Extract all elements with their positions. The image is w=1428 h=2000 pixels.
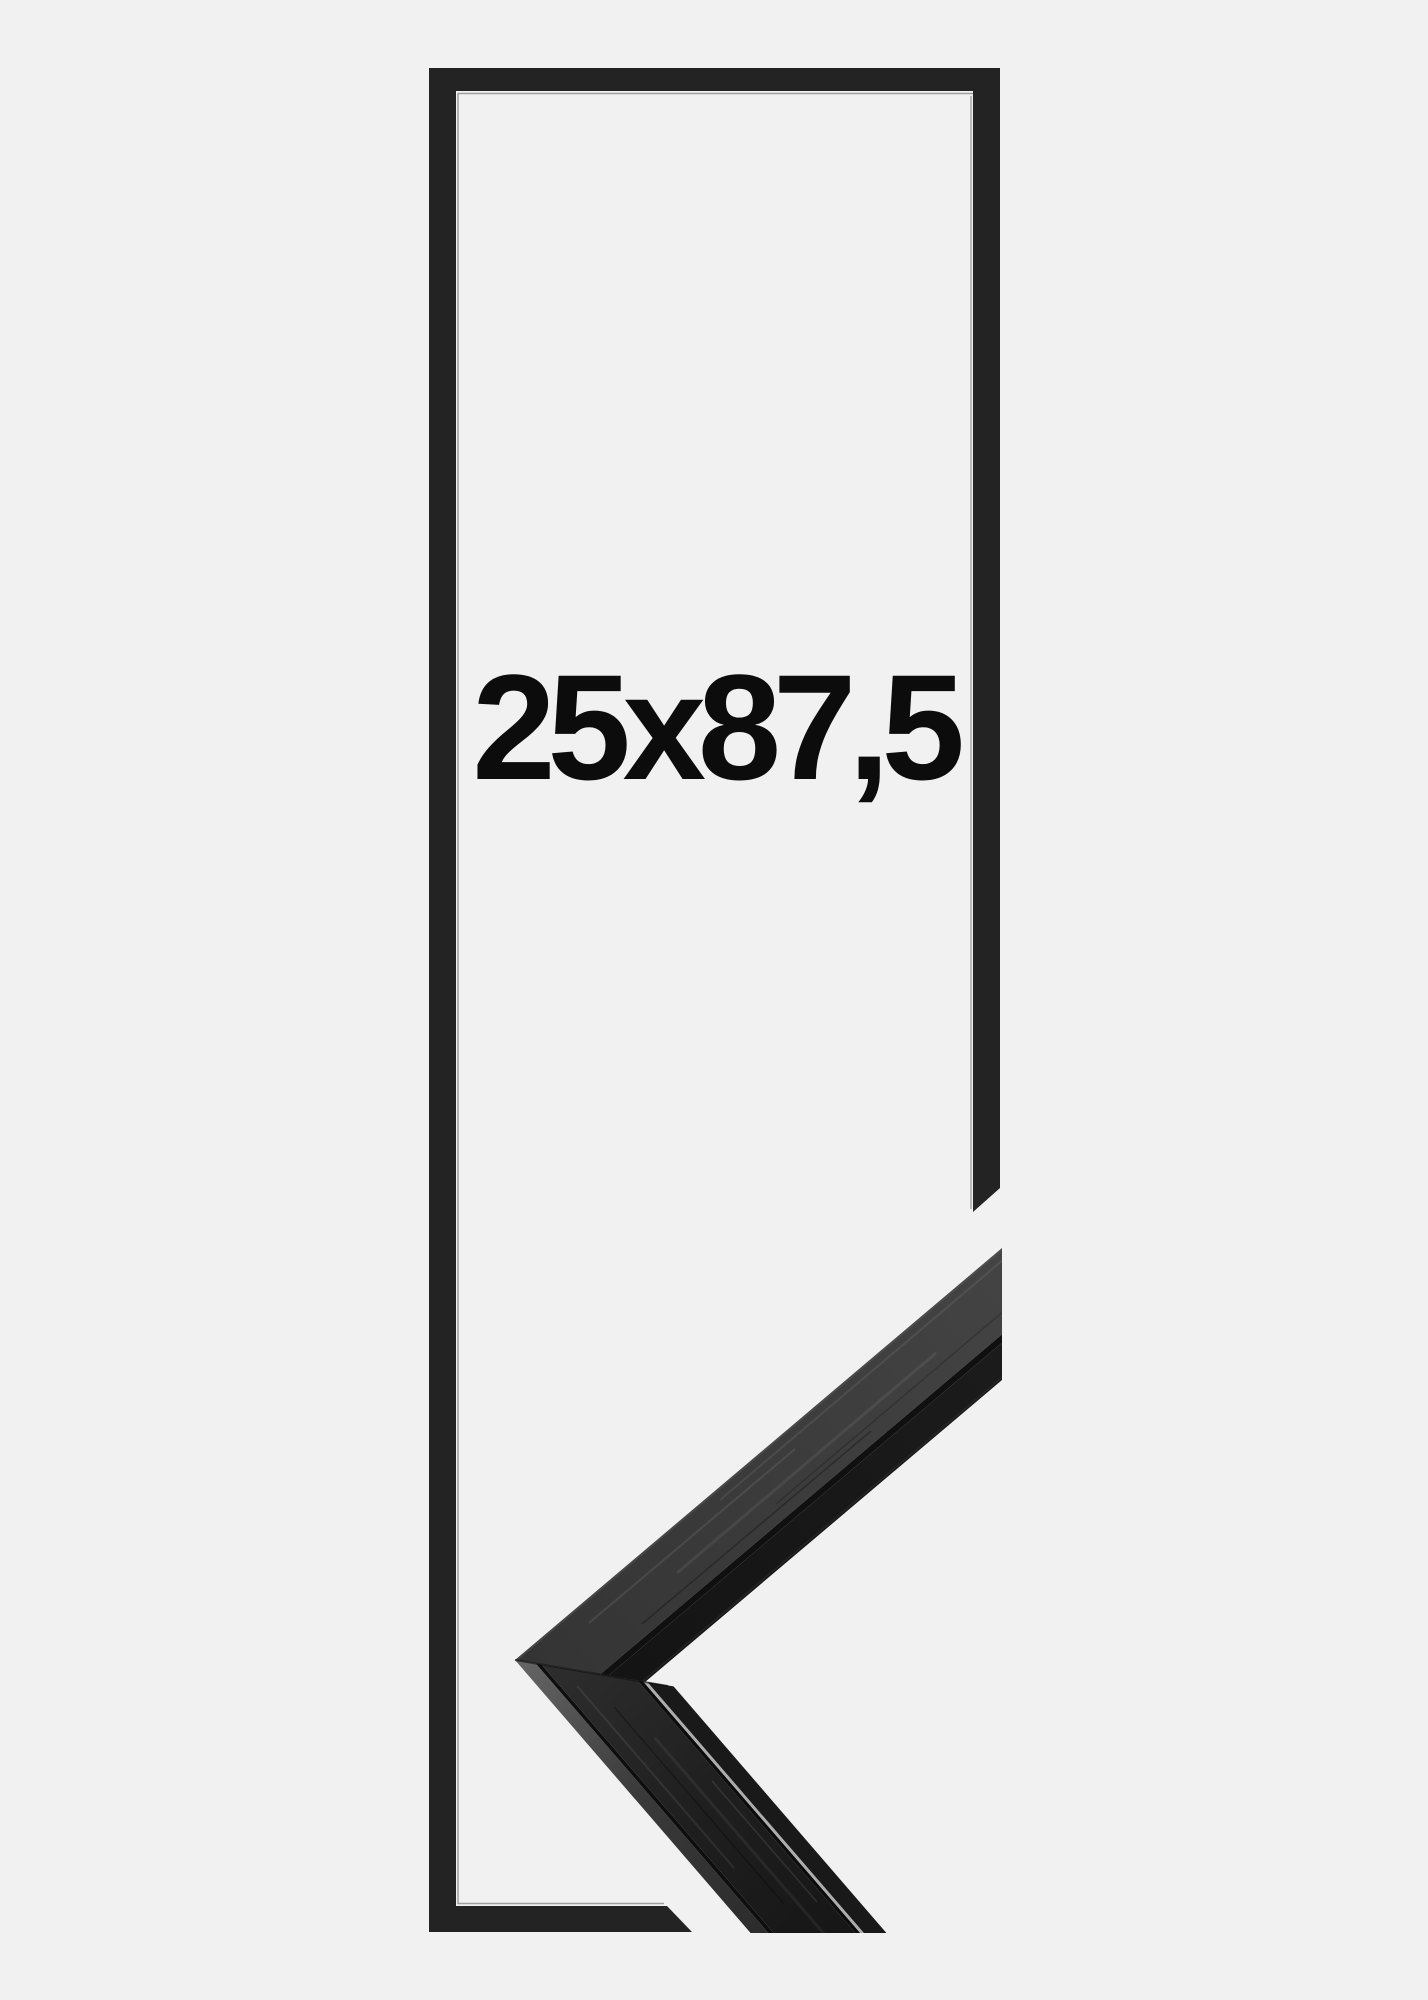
frame-outline bbox=[429, 68, 1000, 1932]
corner-sample-upper-bar bbox=[515, 1166, 1164, 1737]
frame-outline-path bbox=[429, 68, 1000, 1932]
frame-corner-sample bbox=[515, 1166, 1164, 2000]
product-photo: 25x87,5 bbox=[0, 0, 1428, 2000]
frame-illustration bbox=[0, 0, 1428, 2000]
size-label: 25x87,5 bbox=[456, 652, 973, 802]
